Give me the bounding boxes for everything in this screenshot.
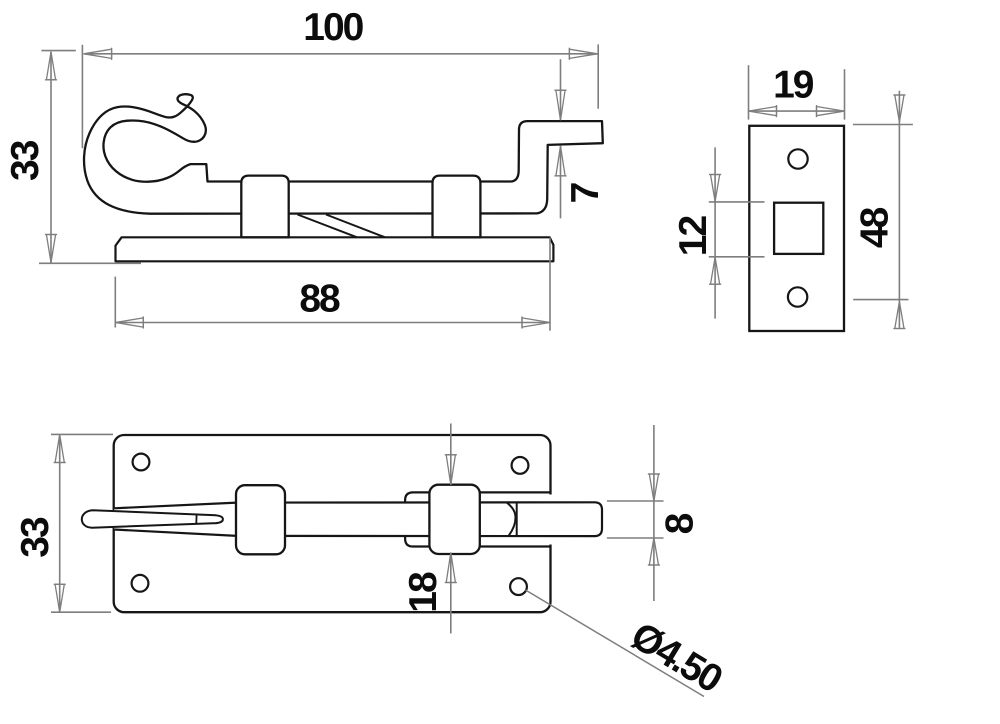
svg-text:19: 19 (773, 64, 814, 107)
svg-text:12: 12 (672, 216, 715, 257)
svg-text:33: 33 (4, 140, 47, 181)
svg-text:8: 8 (659, 513, 702, 534)
svg-text:88: 88 (299, 278, 340, 321)
svg-text:48: 48 (854, 207, 897, 248)
svg-text:18: 18 (402, 572, 445, 613)
svg-text:33: 33 (14, 517, 57, 558)
svg-text:100: 100 (303, 6, 363, 49)
svg-text:7: 7 (564, 183, 607, 203)
